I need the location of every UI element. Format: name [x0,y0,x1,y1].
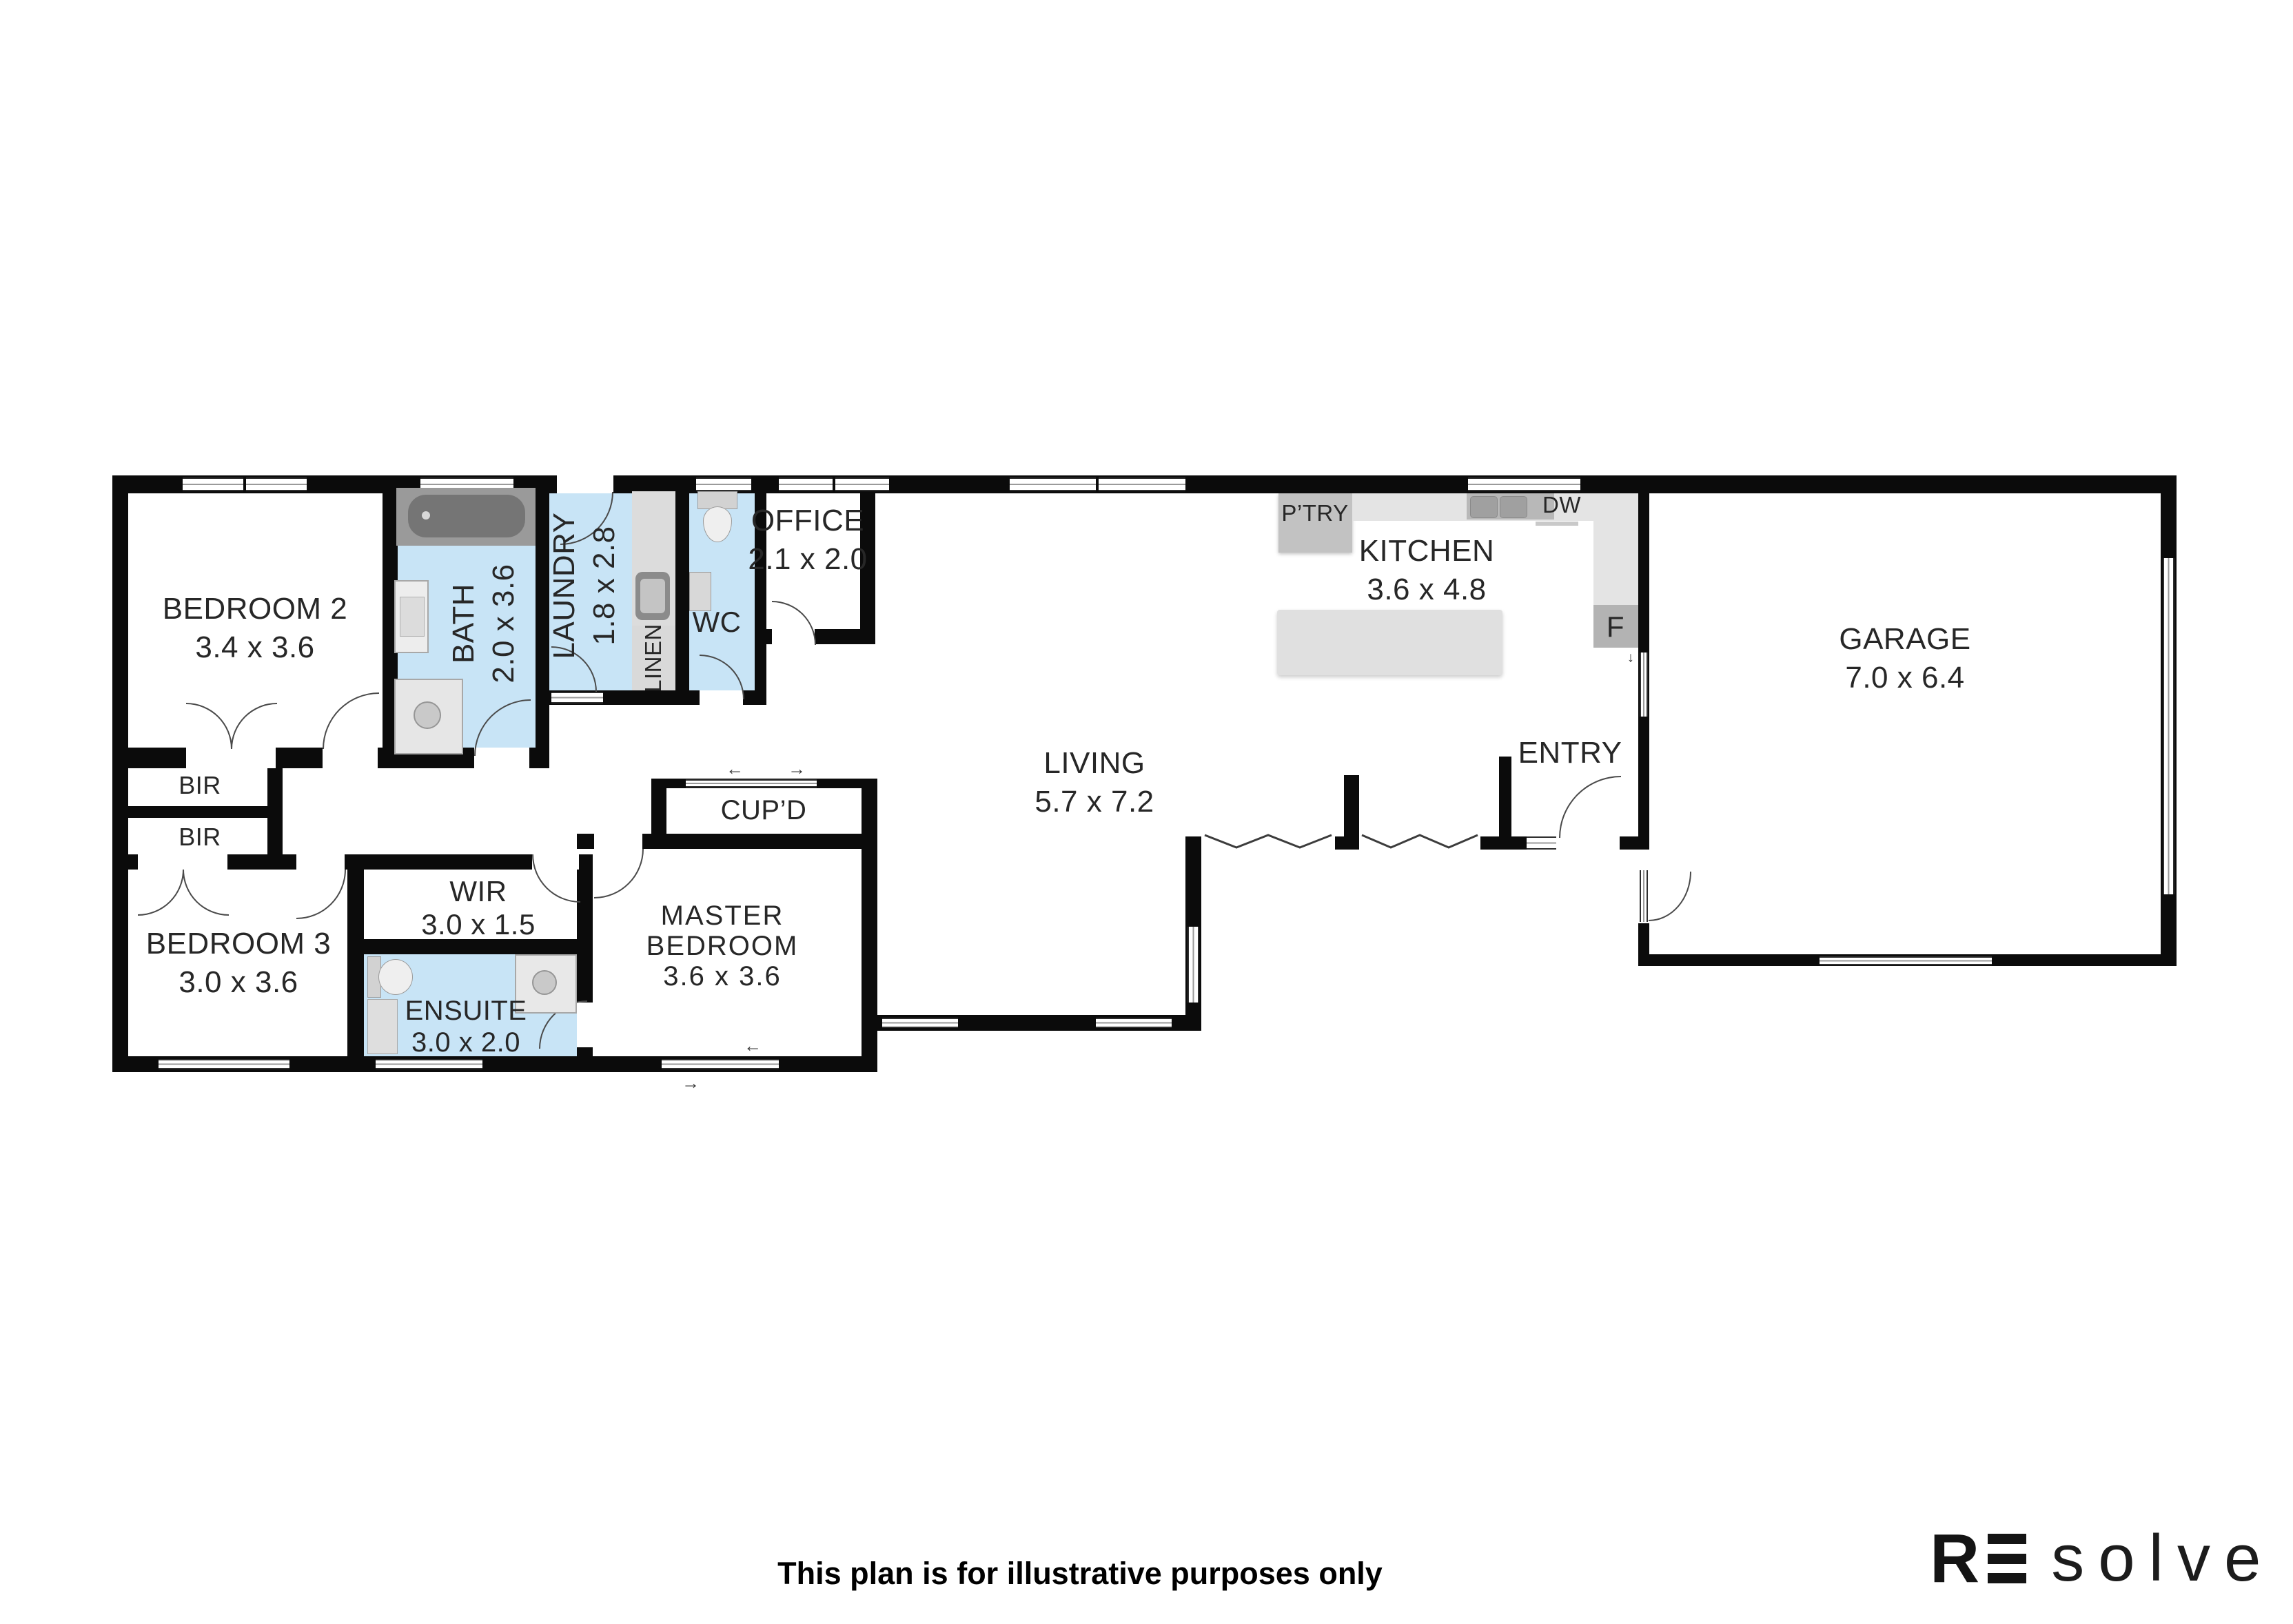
fridge-label: F [1607,608,1624,646]
laundry-label: LAUNDRY 1.8 x 2.8 [544,513,624,659]
room-name: BATH [444,564,484,683]
master-door-arc [594,849,644,898]
cupd-slider-arrow-left-icon: ← [726,759,744,780]
room-dims: 5.7 x 7.2 [1035,783,1154,821]
kitchen-label: KITCHEN 3.6 x 4.8 [1359,532,1495,609]
room-name: BEDROOM 3 [146,925,332,963]
room-dims: 2.0 x 3.6 [484,564,524,683]
office-door-arc [772,601,816,645]
ensuite-shower-head [532,970,557,995]
floor-plan-page: ← → ← → ↓ BEDROOM 2 3.4 x 3.6 BATH 2.0 x… [0,0,2293,1624]
entry-sidelight-window [1527,836,1558,850]
window [1640,652,1648,717]
bedroom2-door-arc [323,692,379,749]
cupd-sliding-door [686,779,817,788]
bedroom3-door-gap [296,854,345,870]
kitchen-sink-basin-left [1470,496,1498,518]
wall-bir-divider [128,806,283,818]
master-slider-arrow-left-icon: ← [744,1036,762,1057]
bath-vanity-basin [400,597,425,637]
window [551,692,603,703]
wall-bedroom3-right [347,854,364,1072]
ensuite-vanity [367,999,398,1054]
wir-label: WIR 3.0 x 1.5 [421,875,536,941]
bath-label: BATH 2.0 x 3.6 [444,564,524,683]
garage-roller-door [2163,558,2174,894]
logo-solve-text: solve [2051,1531,2274,1586]
ensuite-label: ENSUITE 3.0 x 2.0 [405,995,527,1058]
bifold-door-west [1203,831,1333,852]
bedroom2-label: BEDROOM 2 3.4 x 3.6 [163,590,348,667]
oven-front [1536,522,1578,526]
window [183,477,243,491]
window [376,1059,482,1069]
wall-entry-t-stub [1499,757,1511,838]
master-door-gap [594,834,642,849]
room-dims: 3.0 x 2.0 [405,1027,527,1058]
bathtub-drain [422,511,430,520]
wall-bifold-stub-vertical [1344,775,1359,838]
room-dims: 7.0 x 6.4 [1839,659,1970,697]
bifold-door-east [1360,831,1479,852]
laundry-ext-door-gap [557,475,613,493]
kitchen-island [1277,610,1502,675]
room-name-line2: BEDROOM [646,931,799,961]
room-dims: 1.8 x 2.8 [584,513,624,659]
logo-e-bars-icon [1988,1534,2026,1583]
room-name: OFFICE [748,502,867,540]
window [1188,927,1199,1003]
disclaimer-text: This plan is for illustrative purposes o… [777,1556,1383,1592]
window [835,477,889,491]
window [246,477,307,491]
bir2-door-gap [138,854,227,870]
ensuite-toilet-bowl [378,959,413,995]
window [1820,956,1992,965]
bedroom3-label: BEDROOM 3 3.0 x 3.6 [146,925,332,1002]
room-name: LIVING [1035,744,1154,783]
bir1-door-arc-right [231,703,277,749]
window-sliding-door [662,1059,779,1069]
room-dims: 3.0 x 1.5 [421,908,536,941]
room-name-line1: MASTER [646,901,799,931]
window [779,477,833,491]
window [1468,477,1580,491]
window [159,1059,289,1069]
wall-entry-t [1480,836,1527,850]
living-label: LIVING 5.7 x 7.2 [1035,744,1154,821]
bir2-label: BIR [179,825,221,850]
logo-r-letter: R [1930,1531,1981,1586]
entry-arrow-down-icon: ↓ [1627,650,1634,666]
bath-shower-head [414,701,441,729]
cupd-slider-arrow-right-icon: → [788,759,806,780]
bedroom2-door-gap [323,748,378,768]
wall-wir-ensuite-divider [364,939,593,954]
room-dims: 2.1 x 2.0 [748,540,867,579]
wall-laundry-right [675,475,689,705]
room-name: WIR [421,875,536,908]
room-name: ENSUITE [405,995,527,1027]
room-name: LAUNDRY [544,513,584,659]
dishwasher-label: DW [1542,493,1581,517]
window [1010,477,1096,491]
room-dims: 3.6 x 4.8 [1359,571,1495,609]
window [696,477,751,491]
porch-garage-door [1640,870,1648,922]
room-dims: 3.6 x 3.6 [646,961,799,991]
cupd-label: CUP’D [721,791,807,830]
bir2-door-arc-right [183,870,229,916]
wall-left-outer [112,475,128,1072]
bir1-label: BIR [179,773,221,798]
resolve-logo: R solve [1930,1531,2274,1586]
front-door-gap [1556,836,1620,850]
entry-label: ENTRY [1518,734,1622,772]
bir2-door-arc-left [138,870,184,916]
window [882,1018,958,1028]
window [1096,1018,1172,1028]
window [1099,477,1185,491]
master-slider-arrow-right-icon: → [682,1073,700,1094]
bedroom3-door-arc [296,870,346,919]
office-label: OFFICE 2.1 x 2.0 [748,502,867,579]
room-dims: 3.0 x 3.6 [146,963,332,1002]
pantry-label: P’TRY [1281,501,1348,526]
wall-bifold-stub [1335,836,1359,850]
kitchen-counter-return [1593,493,1638,605]
room-name: KITCHEN [1359,532,1495,571]
linen-label: LINEN [641,624,666,692]
kitchen-sink-basin-right [1500,496,1527,518]
bir1-door-gap [186,748,276,768]
garage-label: GARAGE 7.0 x 6.4 [1839,620,1970,697]
master-bedroom-label: MASTER BEDROOM 3.6 x 3.6 [646,901,799,991]
bir1-door-arc-left [186,703,232,749]
wir-door-arc [532,854,580,903]
laundry-sink-basin [640,579,665,613]
room-name: BEDROOM 2 [163,590,348,628]
room-name: GARAGE [1839,620,1970,659]
porch-garage-door-arc [1649,872,1691,921]
front-door-arc [1559,776,1621,838]
wc-label: WC [693,603,742,641]
room-dims: 3.4 x 3.6 [163,628,348,667]
